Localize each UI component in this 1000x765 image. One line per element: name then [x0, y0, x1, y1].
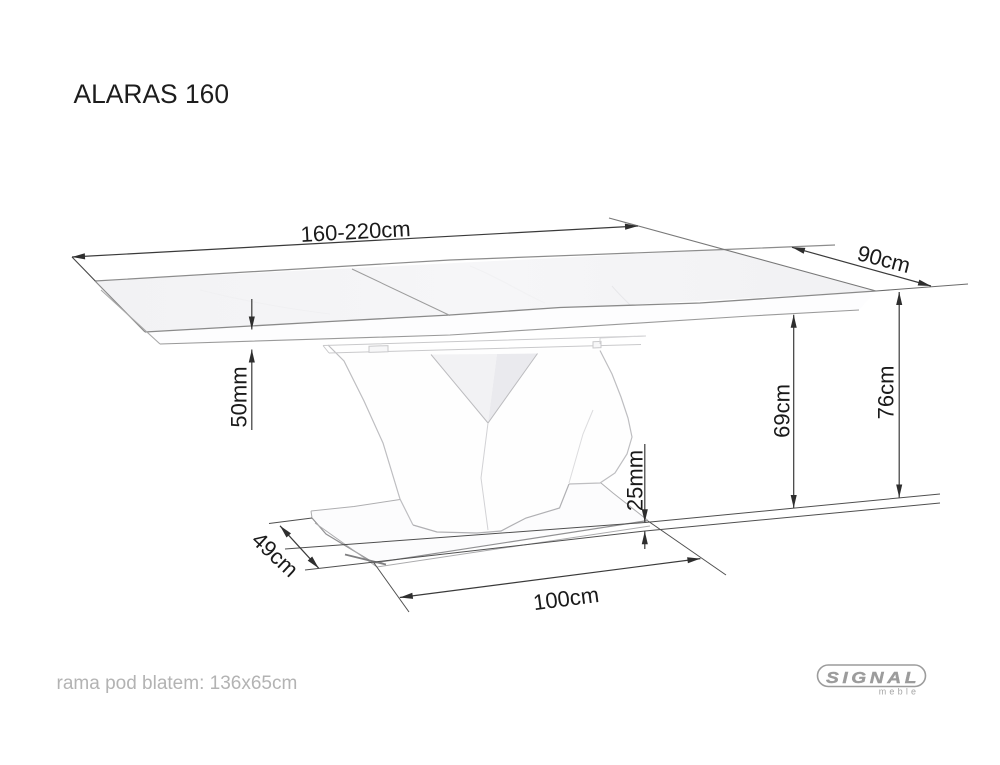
svg-text:SIGNAL: SIGNAL [826, 669, 920, 687]
svg-text:ALARAS 160: ALARAS 160 [74, 79, 230, 109]
svg-text:meble: meble [879, 687, 920, 697]
svg-text:69cm: 69cm [770, 384, 795, 438]
svg-text:rama pod blatem: 136x65cm: rama pod blatem: 136x65cm [57, 673, 298, 694]
svg-text:76cm: 76cm [874, 366, 899, 420]
svg-text:25mm: 25mm [623, 450, 648, 511]
svg-text:50mm: 50mm [227, 366, 252, 427]
